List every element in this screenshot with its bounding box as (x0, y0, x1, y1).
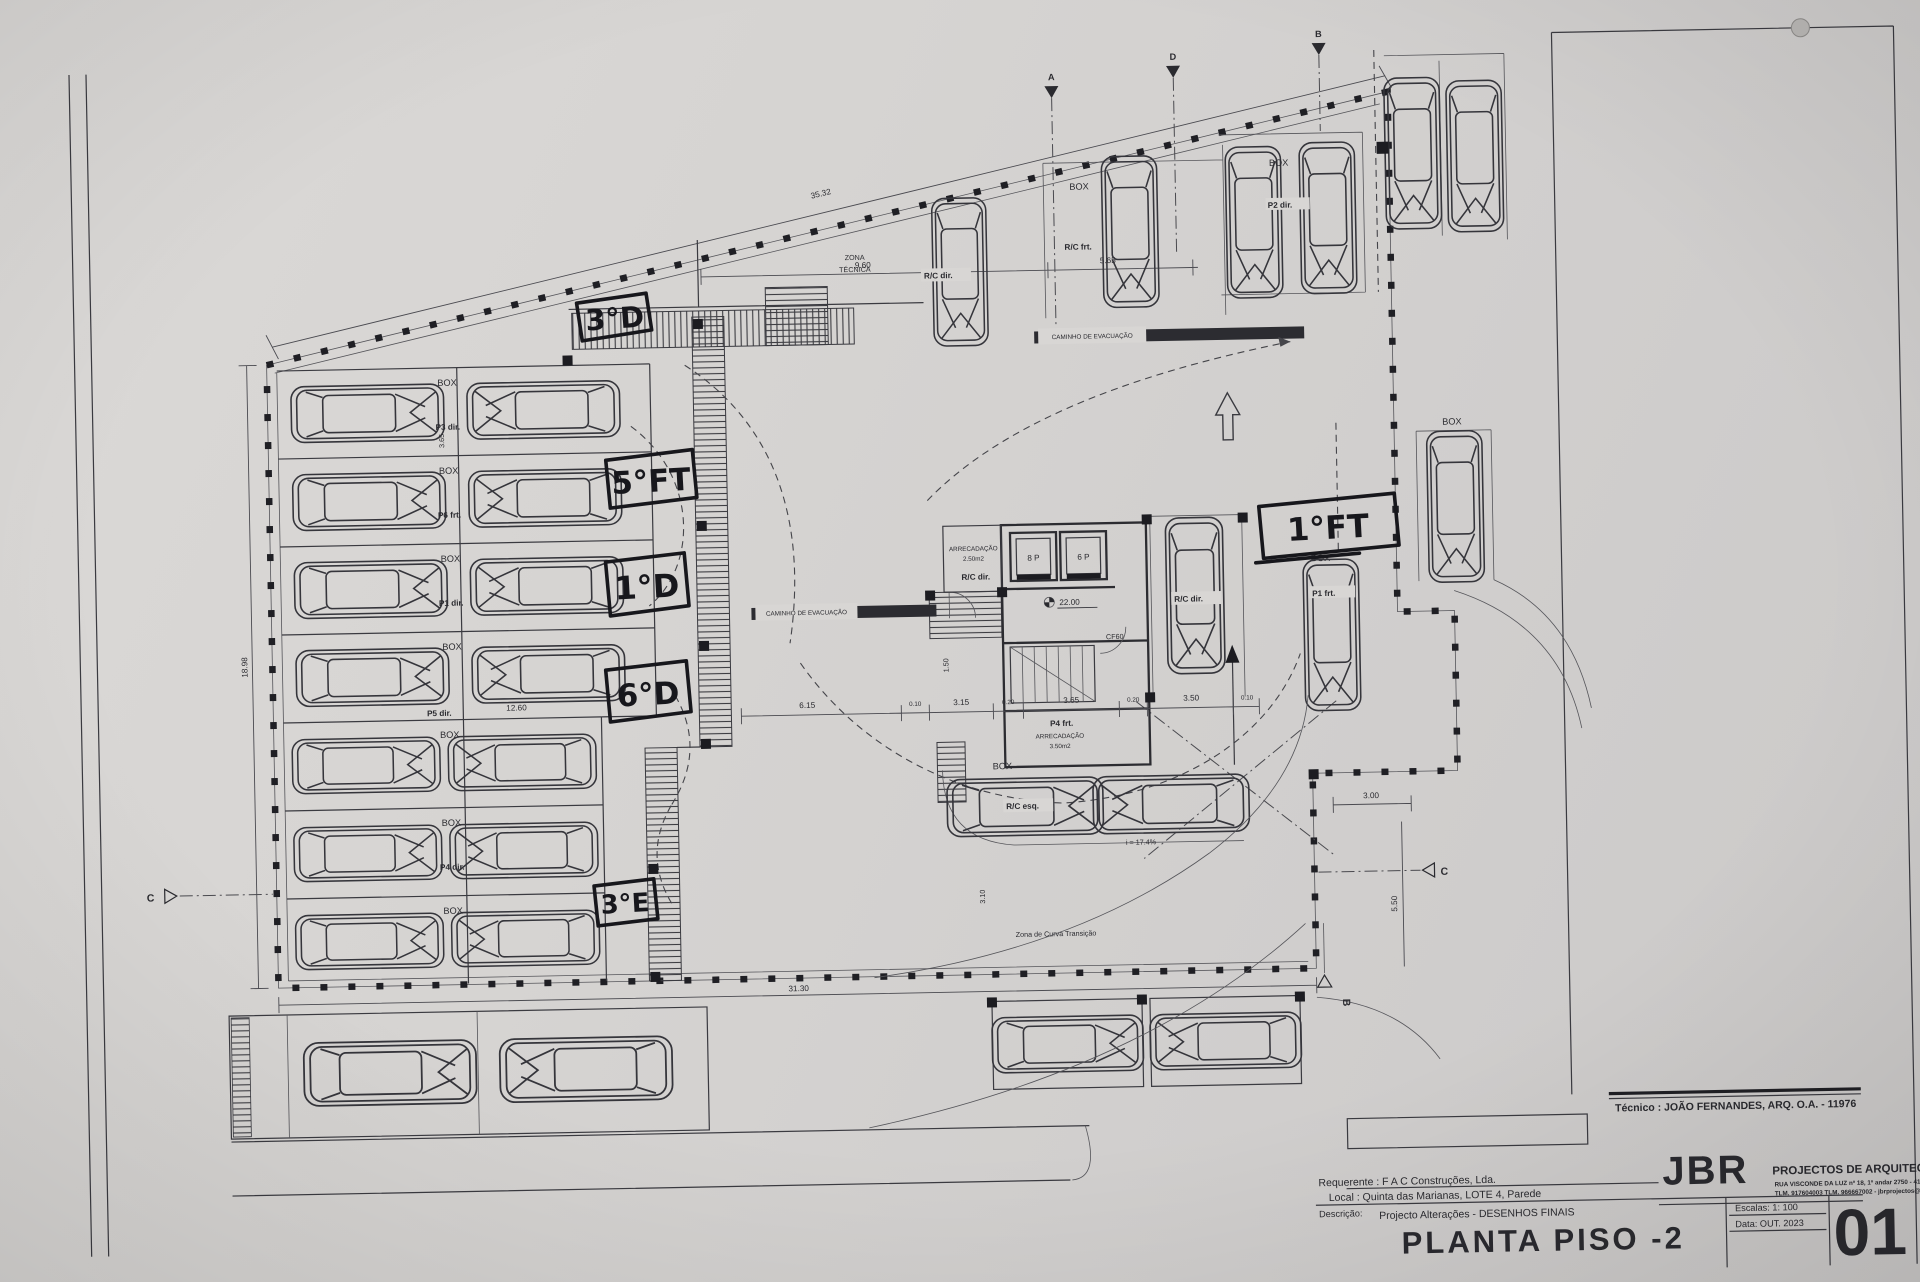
scanned-drawing-photo: 35.32 18.98 BOX P3 dir. 3.65 (0, 0, 1920, 1282)
photo-vignette (0, 0, 1920, 1282)
floor-plan-canvas: 35.32 18.98 BOX P3 dir. 3.65 (0, 0, 1920, 1282)
